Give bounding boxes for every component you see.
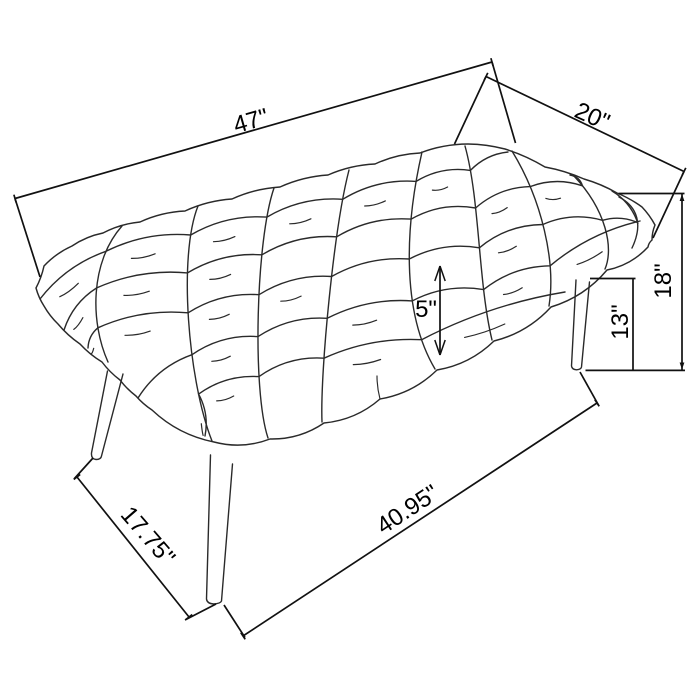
svg-text:5": 5" [415,296,437,323]
svg-text:18": 18" [650,263,677,298]
svg-text:13": 13" [607,304,634,339]
